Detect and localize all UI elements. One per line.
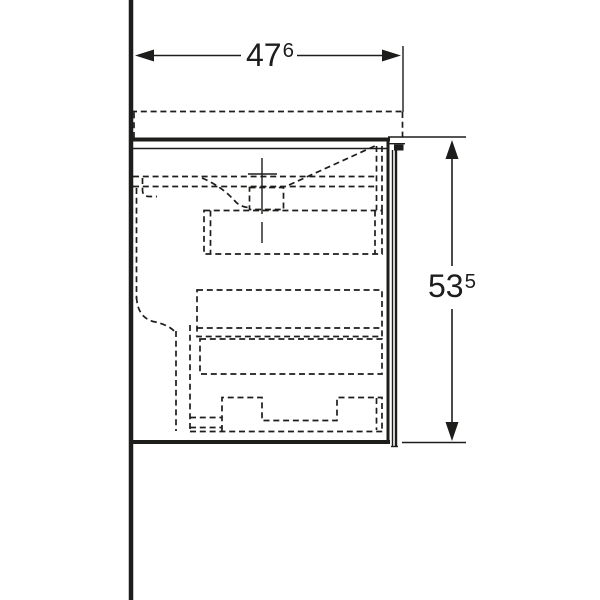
basin-drain-box bbox=[250, 188, 284, 210]
drawer-2-box bbox=[197, 290, 382, 337]
height-dimension-superscript: 5 bbox=[465, 270, 476, 293]
width-arrow-right-icon bbox=[382, 50, 401, 62]
vanity-cabinet-side-section-drawing bbox=[0, 0, 600, 600]
drain-pipe-box bbox=[190, 418, 222, 428]
technical-drawing-canvas: 476 535 bbox=[0, 0, 600, 600]
height-arrow-up-icon bbox=[446, 140, 459, 159]
plinth-feet bbox=[190, 398, 386, 432]
height-arrow-down-icon bbox=[446, 422, 459, 441]
basin-bowl-slope bbox=[202, 178, 248, 208]
height-dimension-label: 535 bbox=[400, 268, 504, 309]
drawer-2 bbox=[197, 290, 382, 337]
height-dimension-value: 53 bbox=[428, 268, 464, 304]
drawer-1-box bbox=[204, 211, 382, 255]
basin-front-diagonal bbox=[289, 145, 377, 185]
drawer-3-box bbox=[200, 339, 382, 374]
siphon-rounded-corner bbox=[137, 297, 177, 333]
drain-centerline bbox=[248, 158, 277, 243]
width-dimension-superscript: 6 bbox=[283, 39, 294, 62]
drawer-3 bbox=[200, 339, 382, 374]
width-dimension-label: 476 bbox=[218, 37, 322, 78]
washbasin-outline bbox=[131, 112, 403, 210]
width-arrow-left-icon bbox=[135, 50, 154, 62]
feet-stepped-outline bbox=[222, 398, 382, 432]
siphon-space bbox=[137, 188, 223, 431]
cabinet-body bbox=[129, 140, 405, 447]
front-lip-block bbox=[394, 145, 404, 151]
drawer-1 bbox=[204, 146, 382, 254]
width-dimension-value: 47 bbox=[246, 37, 282, 73]
